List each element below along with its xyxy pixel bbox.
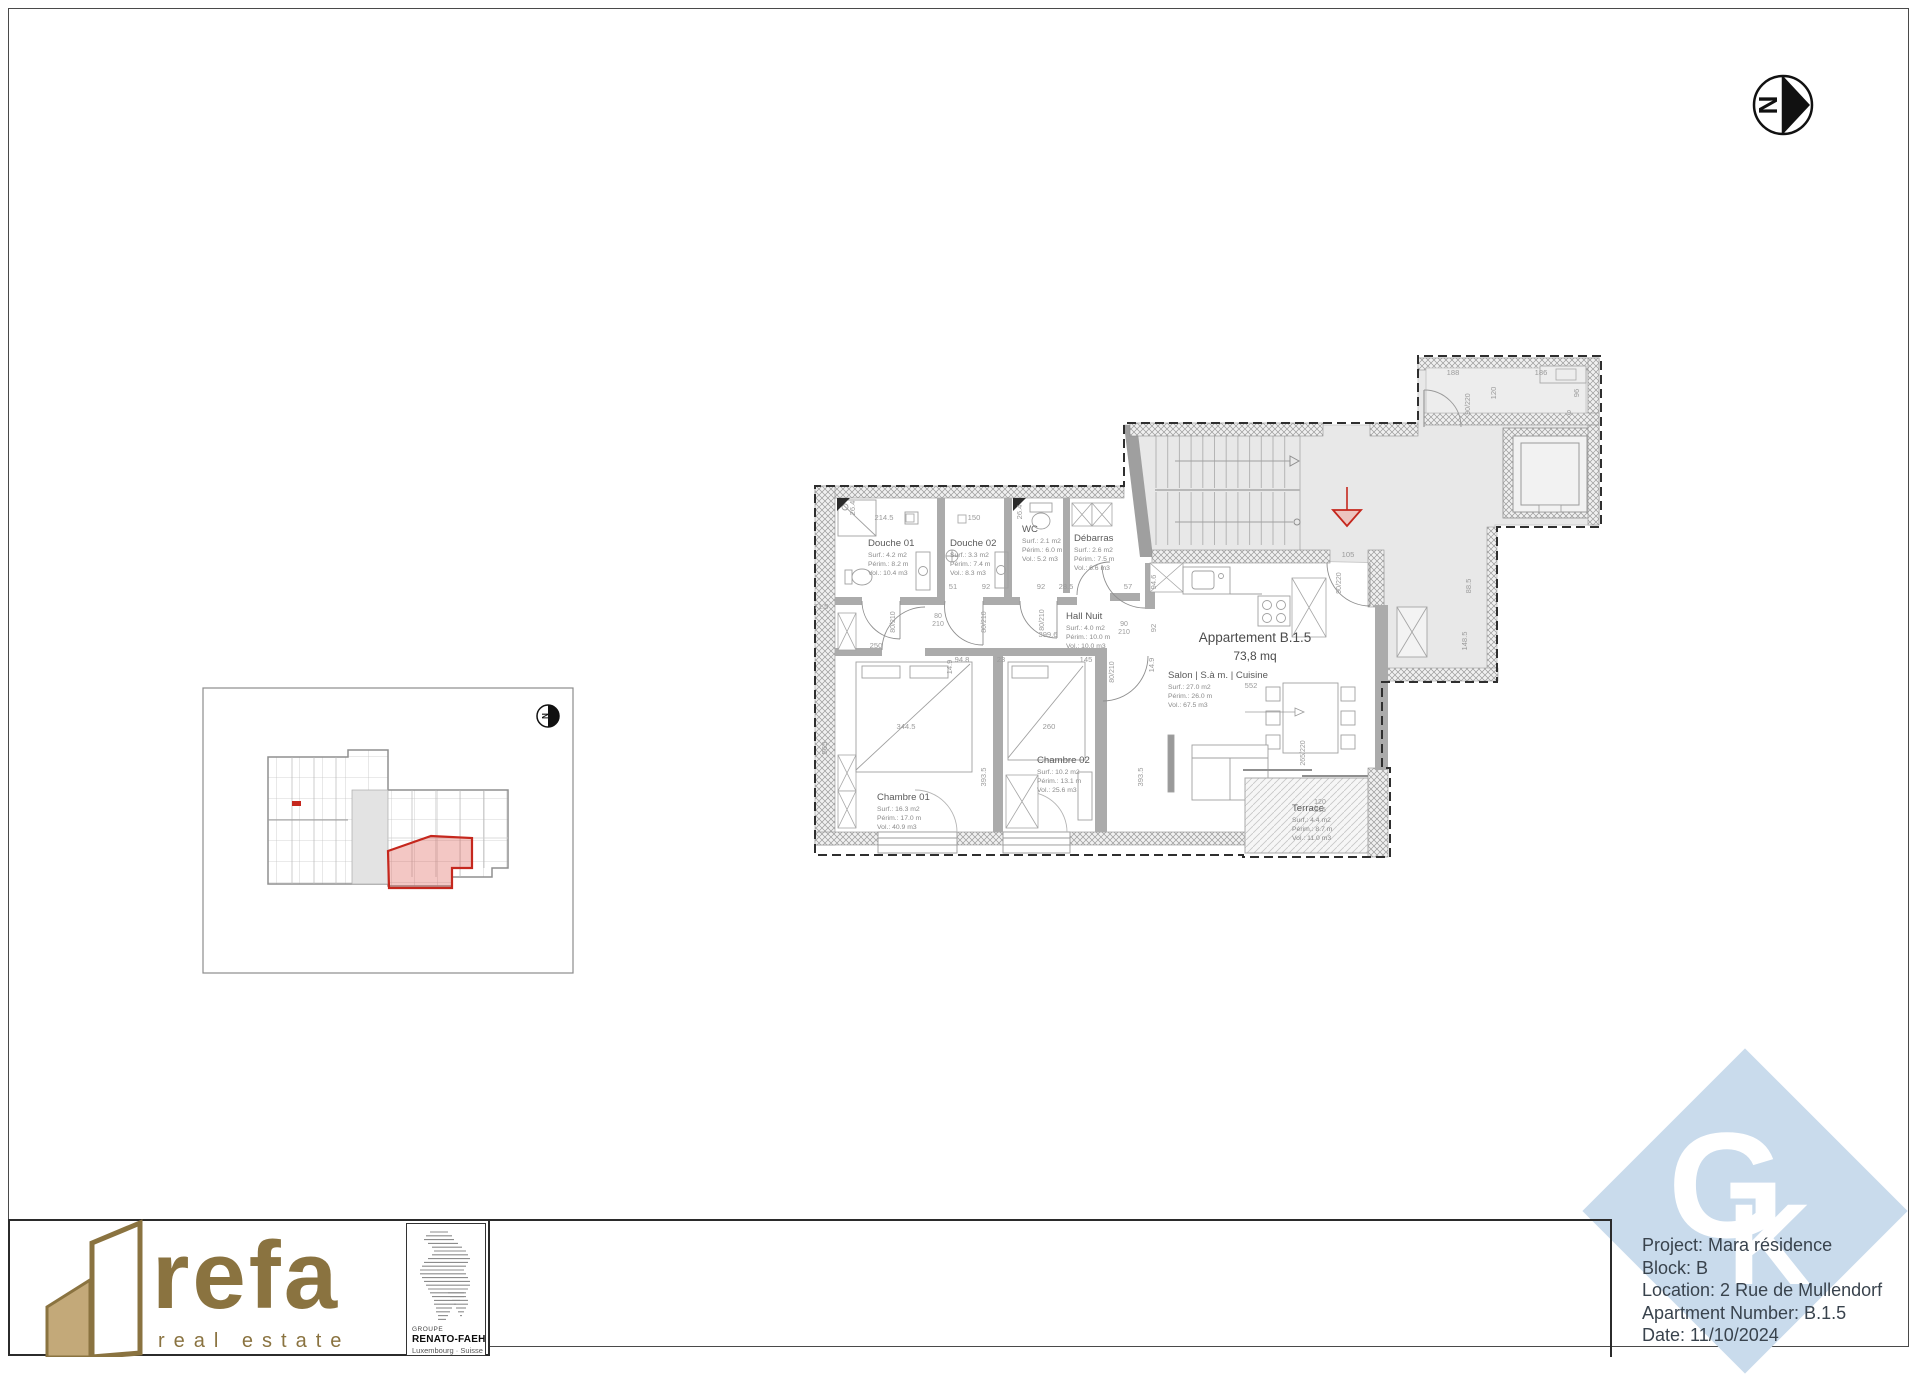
floorplan-document-page: { "north_arrow": {"label": "N"}, "inset"… [0,0,1919,1357]
refa-building-icon [30,1212,160,1357]
svg-text:Vol.: 11.0 m3: Vol.: 11.0 m3 [1292,835,1331,842]
apartment-title: Appartement B.1.5 [1199,630,1312,645]
svg-text:92: 92 [1149,624,1158,632]
svg-text:Périm.: 7.5 m: Périm.: 7.5 m [1074,556,1115,563]
refa-logo-text: refa [152,1228,340,1324]
svg-text:80/210: 80/210 [981,611,988,633]
svg-text:Périm.: 17.0 m: Périm.: 17.0 m [877,815,922,822]
info-project: Project: Mara résidence [1642,1234,1882,1257]
svg-text:92: 92 [982,582,990,591]
svg-text:Vol.: 10.0 m3: Vol.: 10.0 m3 [1066,643,1106,650]
svg-text:393.5: 393.5 [1136,767,1145,786]
svg-text:14.9: 14.9 [945,660,954,675]
svg-text:Surf.: 3.3 m2: Surf.: 3.3 m2 [950,552,989,559]
svg-text:9: 9 [1567,408,1571,417]
svg-text:214.5: 214.5 [874,513,893,522]
svg-text:120: 120 [1489,387,1498,400]
svg-text:265/220: 265/220 [1300,740,1307,765]
inset-entry-marker [292,801,301,806]
floorplan-drawing: Douche 01 Surf.: 4.2 m2 Périm.: 8.2 m Vo… [0,0,1919,1357]
svg-text:94.6: 94.6 [1149,575,1158,590]
svg-text:Surf.: 4.0 m2: Surf.: 4.0 m2 [1066,625,1105,632]
svg-text:Débarras: Débarras [1074,533,1114,544]
svg-text:26.4: 26.4 [848,501,857,516]
groupe-label: GROUPE [412,1326,443,1333]
svg-text:Chambre 02: Chambre 02 [1037,755,1090,766]
svg-text:250: 250 [870,641,883,650]
svg-text:Vol.: 25.6 m3: Vol.: 25.6 m3 [1037,787,1077,794]
corridor-wall [1487,527,1497,680]
svg-text:Vol.: 10.4 m3: Vol.: 10.4 m3 [868,570,908,577]
main-floorplan: Douche 01 Surf.: 4.2 m2 Périm.: 8.2 m Vo… [814,356,1601,857]
svg-text:WC: WC [1022,524,1038,535]
svg-text:260: 260 [1043,722,1056,731]
svg-text:90/220: 90/220 [1465,393,1472,415]
svg-text:Surf.: 4.2 m2: Surf.: 4.2 m2 [868,552,907,559]
info-location: Location: 2 Rue de Mullendorf [1642,1279,1882,1302]
svg-text:N: N [540,713,549,719]
info-apartment: Apartment Number: B.1.5 [1642,1302,1882,1325]
svg-text:94.8: 94.8 [955,655,970,664]
svg-text:188: 188 [1447,368,1460,377]
svg-text:26.4: 26.4 [1015,505,1024,520]
kitchen [1183,567,1290,626]
svg-text:90/220: 90/220 [1336,572,1343,594]
svg-text:565: 565 [820,742,829,755]
corridor-column [1397,607,1427,657]
svg-text:N: N [1753,96,1783,115]
svg-text:Vol.: 8.3 m3: Vol.: 8.3 m3 [950,570,986,577]
svg-text:Surf.: 27.0 m2: Surf.: 27.0 m2 [1168,684,1211,691]
svg-text:Salon | S.à m. | Cuisine: Salon | S.à m. | Cuisine [1168,670,1268,681]
svg-text:552: 552 [1245,681,1258,690]
svg-text:Périm.: 6.0 m: Périm.: 6.0 m [1022,547,1063,554]
svg-text:Chambre 01: Chambre 01 [877,792,930,803]
svg-text:Vol.: 40.9 m3: Vol.: 40.9 m3 [877,824,917,831]
svg-text:150: 150 [968,513,981,522]
svg-text:Périm.: 7.4 m: Périm.: 7.4 m [950,561,991,568]
svg-text:Surf.: 16.3 m2: Surf.: 16.3 m2 [877,806,920,813]
svg-text:Périm.: 26.0 m: Périm.: 26.0 m [1168,693,1213,700]
svg-text:105: 105 [1342,550,1355,559]
svg-text:186: 186 [1535,368,1548,377]
svg-text:Surf.: 10.2 m2: Surf.: 10.2 m2 [1037,769,1080,776]
svg-text:Périm.: 13.1 m: Périm.: 13.1 m [1037,778,1082,785]
svg-text:Surf.: 4.4 m2: Surf.: 4.4 m2 [1292,817,1331,824]
elevator [1503,428,1599,518]
svg-text:71.5: 71.5 [814,602,829,611]
svg-text:344.5: 344.5 [896,722,915,731]
svg-text:Surf.: 2.1 m2: Surf.: 2.1 m2 [1022,538,1061,545]
inset-north-arrow: N [537,705,559,727]
north-arrow: N [1753,75,1812,135]
svg-text:Périm.: 10.0 m: Périm.: 10.0 m [1066,634,1111,641]
svg-text:28.5: 28.5 [1059,582,1074,591]
svg-text:120215: 120215 [1314,799,1326,814]
svg-text:Périm.: 8.7 m: Périm.: 8.7 m [1292,826,1333,833]
svg-text:Périm.: 8.2 m: Périm.: 8.2 m [868,561,909,568]
svg-text:23: 23 [997,655,1005,664]
groupe-subtitle: Luxembourg · Suisse [412,1346,483,1355]
svg-text:80/210: 80/210 [1109,661,1116,683]
groupe-name: RENATO-FAEH [412,1334,486,1345]
svg-text:14.9: 14.9 [1147,658,1156,673]
svg-text:80/210: 80/210 [1039,609,1046,631]
svg-text:148.5: 148.5 [1460,631,1469,650]
svg-text:92: 92 [1037,582,1045,591]
svg-text:80210: 80210 [932,613,944,628]
svg-text:96: 96 [1572,389,1581,397]
info-block: Block: B [1642,1257,1882,1280]
svg-text:Hall Nuit: Hall Nuit [1066,611,1103,622]
apartment-area: 73,8 mq [1233,649,1276,663]
svg-text:Surf.: 2.6 m2: Surf.: 2.6 m2 [1074,547,1113,554]
svg-text:88.5: 88.5 [1464,579,1473,594]
svg-text:90210: 90210 [1118,621,1130,636]
overview-inset: N [203,688,573,973]
corridor-bottom-wall [1382,668,1498,681]
svg-text:393.5: 393.5 [979,767,988,786]
info-panel-divider [1610,1219,1612,1357]
bed-chambre01 [856,662,972,772]
horse-icon [408,1228,484,1324]
svg-text:Vol.: 6.6 m3: Vol.: 6.6 m3 [1074,565,1110,572]
svg-text:Vol.: 5.2 m3: Vol.: 5.2 m3 [1022,556,1058,563]
refa-tagline: real estate [158,1330,350,1353]
svg-text:Vol.: 67.5 m3: Vol.: 67.5 m3 [1168,702,1208,709]
project-info-panel: Project: Mara résidence Block: B Locatio… [1642,1234,1882,1347]
svg-text:Douche 02: Douche 02 [950,538,996,549]
svg-text:145: 145 [1080,655,1093,664]
info-date: Date: 11/10/2024 [1642,1324,1882,1347]
dining-table [1266,683,1355,753]
svg-text:51: 51 [949,582,957,591]
svg-text:57: 57 [1124,582,1132,591]
svg-text:Douche 01: Douche 01 [868,538,914,549]
svg-text:80/210: 80/210 [890,611,897,633]
